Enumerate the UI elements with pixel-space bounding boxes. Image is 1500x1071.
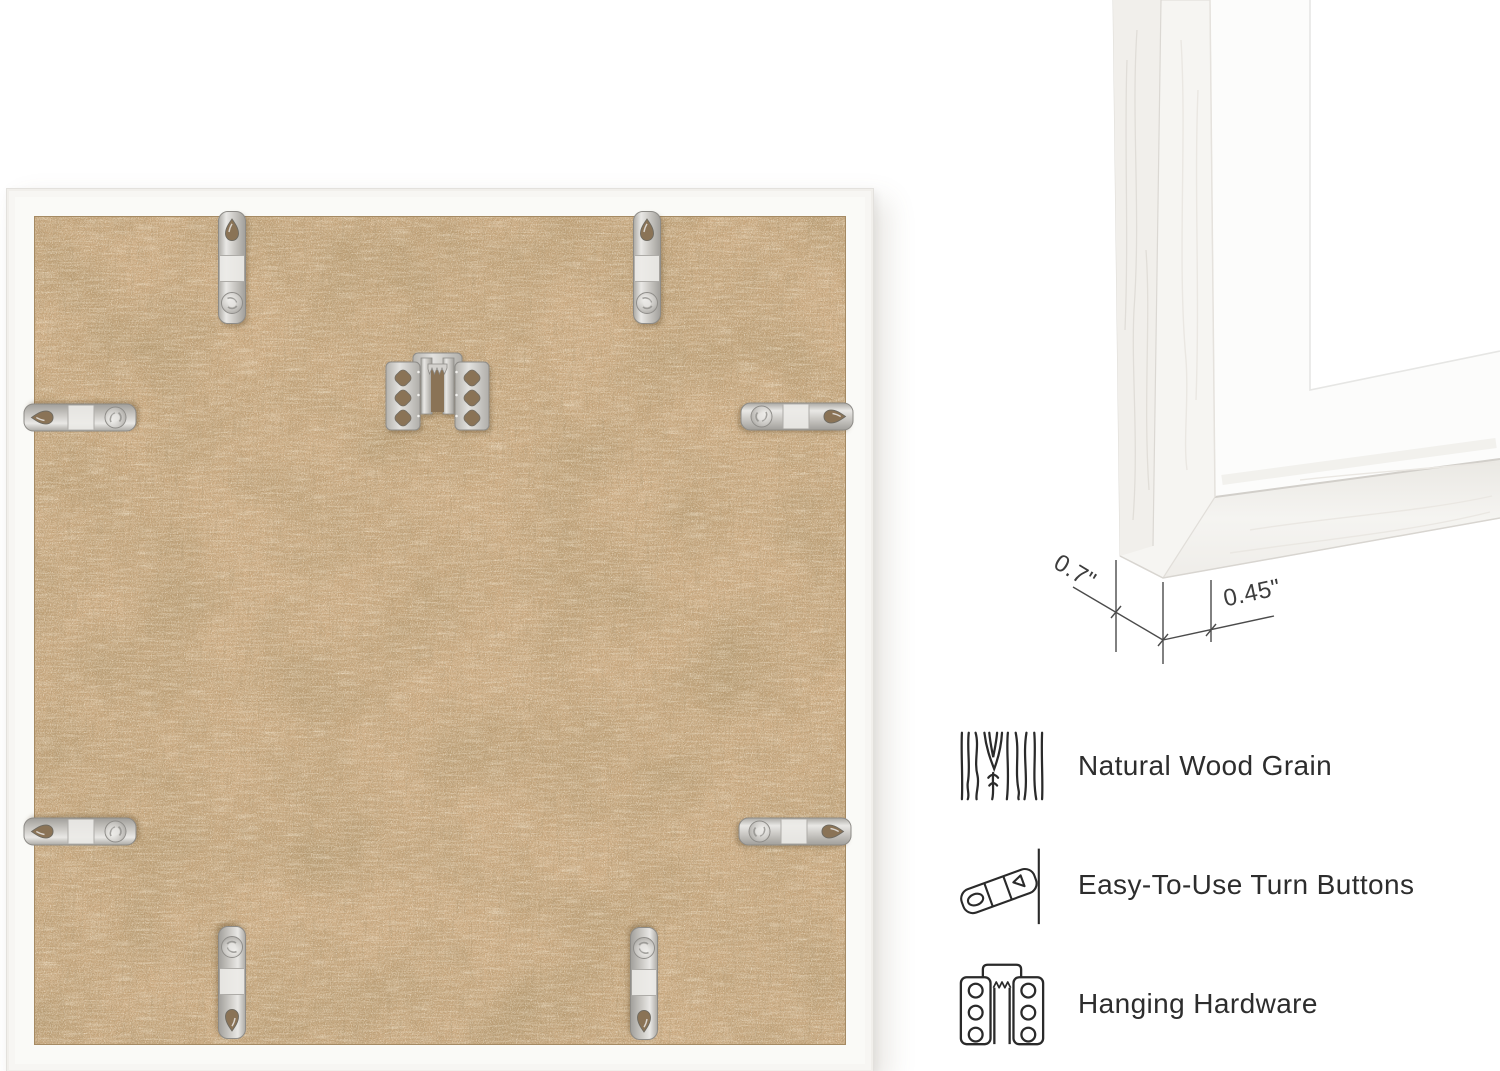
feature-row-wood-grain: Natural Wood Grain — [956, 723, 1332, 809]
turn-button — [740, 402, 855, 432]
hanging-hardware-icon — [956, 960, 1048, 1048]
feature-label: Natural Wood Grain — [1078, 750, 1332, 782]
feature-label: Hanging Hardware — [1078, 988, 1318, 1020]
turn-button — [23, 817, 138, 847]
feature-label: Easy-To-Use Turn Buttons — [1078, 869, 1414, 901]
feature-row-hanging-hardware: Hanging Hardware — [956, 961, 1318, 1047]
turn-button — [738, 817, 853, 847]
photo-area — [1310, 0, 1500, 390]
turn-button — [632, 210, 662, 325]
turn-button — [217, 210, 247, 325]
turn-button — [217, 925, 247, 1040]
sawtooth-hanger — [384, 350, 491, 432]
turn-button-icon — [956, 839, 1048, 931]
frame-back-panel — [6, 188, 874, 1071]
turn-button — [23, 403, 138, 433]
feature-row-turn-buttons: Easy-To-Use Turn Buttons — [956, 842, 1414, 928]
wood-grain-icon — [956, 731, 1048, 801]
turn-button — [629, 926, 659, 1041]
mdf-texture — [35, 217, 845, 1044]
mdf-backing-board — [34, 216, 846, 1045]
product-image: 0.7" 0.45" — [0, 0, 1500, 1071]
